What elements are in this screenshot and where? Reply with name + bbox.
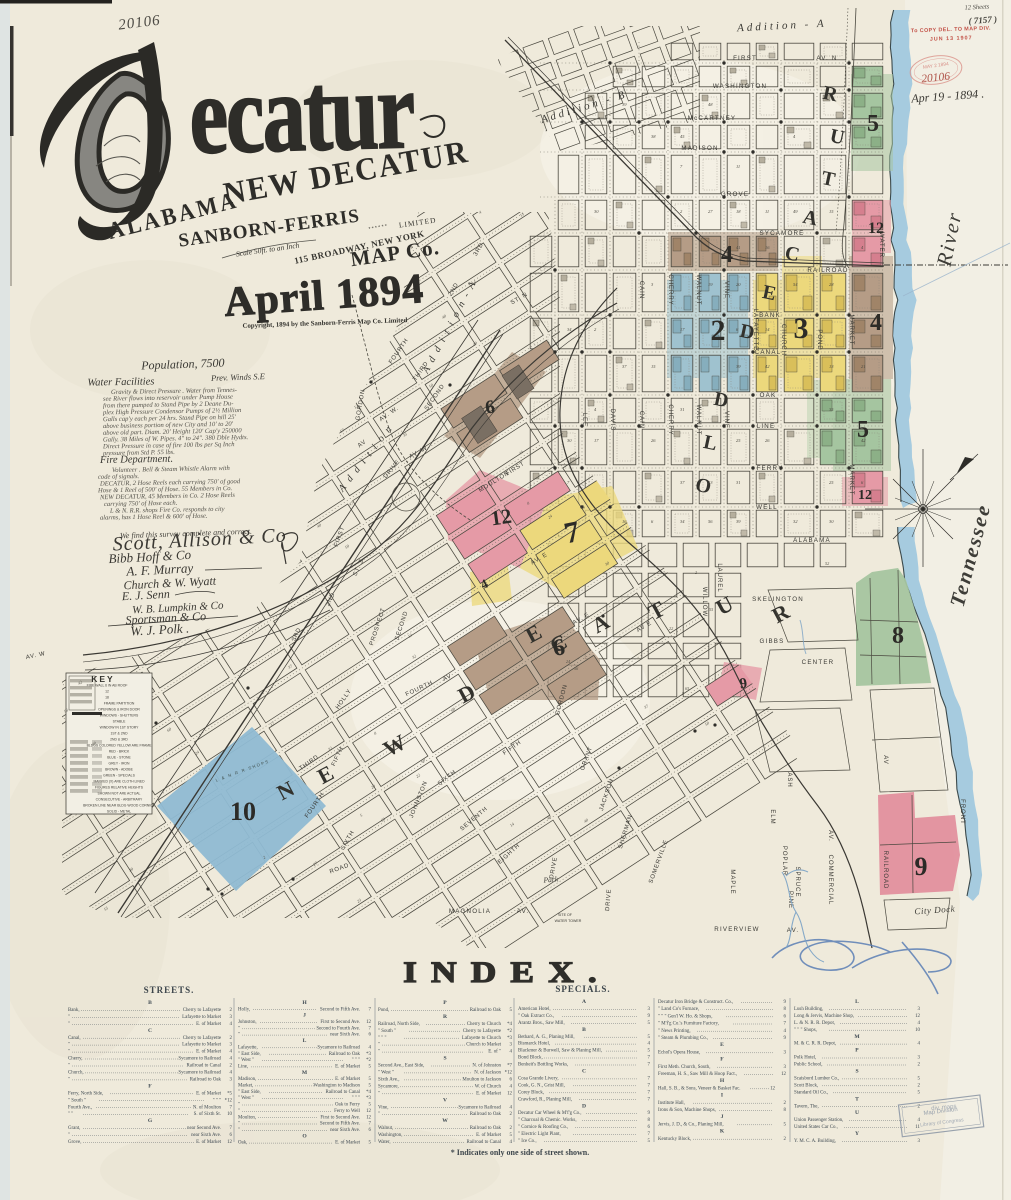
svg-text:Moulton,: Moulton, bbox=[238, 1115, 256, 1120]
svg-text:E. of Market: E. of Market bbox=[196, 1091, 221, 1096]
svg-text:E. J. Senn: E. J. Senn bbox=[120, 587, 170, 604]
svg-text:27: 27 bbox=[708, 209, 713, 214]
svg-text:P: P bbox=[855, 1048, 859, 1054]
svg-text:Line,: Line, bbox=[238, 1064, 248, 1069]
svg-text:" " " Shops,: " " " Shops, bbox=[794, 1028, 817, 1033]
svg-text:": " bbox=[238, 1128, 240, 1133]
svg-text:16: 16 bbox=[622, 519, 627, 524]
svg-text:STREETS.: STREETS. bbox=[144, 985, 195, 995]
svg-text:CENTER: CENTER bbox=[802, 659, 835, 666]
svg-text:United States Car Co.,: United States Car Co., bbox=[794, 1125, 838, 1130]
svg-text:" South ": " South " bbox=[68, 1098, 86, 1103]
svg-text:" Electric Light Plant,: " Electric Light Plant, bbox=[518, 1132, 561, 1137]
svg-text:S: S bbox=[855, 1069, 858, 1075]
svg-text:": " bbox=[68, 1015, 70, 1020]
svg-text:" Land Co's Furnace,: " Land Co's Furnace, bbox=[658, 1007, 699, 1012]
svg-text:First to Second Ave.: First to Second Ave. bbox=[320, 1115, 360, 1120]
svg-text:Railroad to Canal: Railroad to Canal bbox=[326, 1090, 361, 1095]
svg-text:SKELINGTON: SKELINGTON bbox=[752, 596, 804, 603]
svg-text:Corey Block,: Corey Block, bbox=[518, 1090, 544, 1095]
svg-text:31: 31 bbox=[680, 407, 685, 412]
svg-text:Sycamore to Railroad: Sycamore to Railroad bbox=[317, 1045, 360, 1050]
svg-text:52: 52 bbox=[825, 561, 829, 566]
svg-text:49: 49 bbox=[793, 209, 798, 214]
svg-text:": " bbox=[238, 1109, 240, 1114]
svg-text:37: 37 bbox=[680, 480, 685, 485]
svg-text:F: F bbox=[148, 1083, 152, 1089]
svg-text:10: 10 bbox=[915, 1028, 920, 1033]
svg-text:GREY - IRON: GREY - IRON bbox=[108, 762, 130, 766]
svg-text:Railroad to Canal: Railroad to Canal bbox=[467, 1140, 502, 1145]
svg-text:C: C bbox=[148, 1028, 152, 1034]
svg-text:": " bbox=[68, 1050, 70, 1055]
svg-text:39: 39 bbox=[736, 364, 741, 369]
svg-text:*2: *2 bbox=[507, 1029, 512, 1034]
svg-text:L: L bbox=[303, 1038, 307, 1044]
svg-text:21: 21 bbox=[861, 364, 866, 369]
svg-text:WASHINGTON: WASHINGTON bbox=[713, 83, 767, 90]
svg-text:" East Side,: " East Side, bbox=[238, 1090, 261, 1095]
svg-text:Scaisbord Lumber Co.,: Scaisbord Lumber Co., bbox=[794, 1076, 839, 1081]
svg-text:SPECIALS.: SPECIALS. bbox=[555, 984, 610, 994]
svg-text:B: B bbox=[582, 1027, 586, 1033]
svg-text:39: 39 bbox=[736, 519, 741, 524]
svg-text:18: 18 bbox=[736, 209, 741, 214]
svg-text:AV.: AV. bbox=[787, 927, 800, 934]
svg-text:34: 34 bbox=[567, 327, 572, 332]
svg-text:*3: *3 bbox=[366, 1052, 371, 1057]
svg-text:B: B bbox=[148, 1000, 152, 1006]
svg-text:MARKET: MARKET bbox=[848, 314, 854, 345]
svg-text:" " ": " " " bbox=[352, 1096, 360, 1101]
svg-text:22: 22 bbox=[669, 626, 673, 631]
svg-text:" Cornice & Roofing Co.,: " Cornice & Roofing Co., bbox=[518, 1125, 568, 1130]
svg-text:near Sixth Ave.: near Sixth Ave. bbox=[330, 1128, 360, 1133]
svg-text:First Meth. Church, South,: First Meth. Church, South, bbox=[658, 1065, 710, 1070]
svg-text:Railroad, North Side,: Railroad, North Side, bbox=[378, 1022, 420, 1027]
svg-text:65: 65 bbox=[685, 686, 689, 691]
svg-text:" ": " " bbox=[68, 1112, 73, 1117]
svg-text:": " bbox=[68, 1022, 70, 1027]
svg-text:Lafayette to Market: Lafayette to Market bbox=[182, 1043, 221, 1048]
svg-text:W: W bbox=[442, 1118, 448, 1124]
svg-text:17: 17 bbox=[680, 327, 685, 332]
svg-text:E. of Market: E. of Market bbox=[196, 1022, 221, 1027]
svg-text:*7: *7 bbox=[507, 1064, 512, 1069]
svg-text:Arantz Bros., Saw Mill,: Arantz Bros., Saw Mill, bbox=[518, 1021, 565, 1026]
svg-text:MADISON: MADISON bbox=[681, 145, 718, 152]
svg-text:10: 10 bbox=[230, 797, 256, 826]
svg-text:STABLE: STABLE bbox=[113, 720, 126, 724]
svg-text:" West ": " West " bbox=[378, 1071, 394, 1076]
svg-text:Prev. Winds S.E: Prev. Winds S.E bbox=[210, 371, 266, 383]
svg-text:WELL: WELL bbox=[756, 504, 778, 511]
svg-text:" West ": " West " bbox=[238, 1058, 254, 1063]
svg-text:12 Sheets: 12 Sheets bbox=[964, 3, 990, 11]
svg-text:AV: AV bbox=[882, 755, 888, 765]
svg-text:4: 4 bbox=[721, 242, 733, 268]
svg-text:Bond Block,: Bond Block, bbox=[518, 1056, 543, 1061]
svg-text:E. of Market: E. of Market bbox=[476, 1091, 501, 1096]
svg-text:": " bbox=[238, 1026, 240, 1031]
svg-text:12: 12 bbox=[489, 504, 513, 531]
svg-text:" Steam & Plumbing Co.,: " Steam & Plumbing Co., bbox=[658, 1036, 708, 1041]
svg-text:GREEN - SPECIALS: GREEN - SPECIALS bbox=[103, 774, 135, 778]
svg-text:Railroad to Oak: Railroad to Oak bbox=[190, 1077, 222, 1082]
svg-text:": " bbox=[238, 1122, 240, 1127]
svg-text:11: 11 bbox=[765, 209, 769, 214]
svg-text:Moulton to Jackson: Moulton to Jackson bbox=[462, 1077, 501, 1082]
svg-text:U: U bbox=[855, 1110, 859, 1116]
svg-text:VINE: VINE bbox=[723, 281, 729, 299]
svg-text:CONSECUTIVE - ARBITRARY: CONSECUTIVE - ARBITRARY bbox=[96, 798, 143, 802]
svg-text:Bank,: Bank, bbox=[68, 1008, 80, 1013]
svg-text:56: 56 bbox=[708, 519, 713, 524]
svg-text:12: 12 bbox=[507, 1091, 512, 1096]
svg-text:Ferry to Well: Ferry to Well bbox=[334, 1109, 361, 1114]
svg-text:9: 9 bbox=[915, 852, 928, 881]
svg-text:Bismarck Hotel,: Bismarck Hotel, bbox=[518, 1042, 550, 1047]
svg-text:F: F bbox=[720, 1057, 724, 1063]
svg-text:2ND & 3RD: 2ND & 3RD bbox=[110, 738, 128, 742]
svg-text:LAFAYETTE: LAFAYETTE bbox=[752, 309, 758, 352]
svg-text:WALNUT: WALNUT bbox=[695, 404, 701, 435]
svg-text:LAUREL: LAUREL bbox=[716, 563, 722, 592]
svg-text:Second to Fifth Ave.: Second to Fifth Ave. bbox=[320, 1122, 360, 1127]
svg-text:DAVIS: DAVIS bbox=[609, 409, 615, 432]
svg-text:": " bbox=[378, 1112, 380, 1117]
svg-text:30: 30 bbox=[567, 438, 572, 443]
svg-text:M. & C. R. R. Depot,: M. & C. R. R. Depot, bbox=[794, 1042, 836, 1047]
svg-text:48: 48 bbox=[708, 102, 713, 107]
svg-text:AV.: AV. bbox=[827, 830, 833, 842]
svg-text:Cherry to Church: Cherry to Church bbox=[467, 1022, 502, 1027]
svg-text:": " bbox=[68, 1043, 70, 1048]
svg-text:CHURCH: CHURCH bbox=[780, 324, 786, 356]
svg-text:": " bbox=[238, 1103, 240, 1108]
svg-text:*5: *5 bbox=[227, 1091, 232, 1096]
svg-text:11: 11 bbox=[736, 164, 740, 169]
svg-text:Cherry,: Cherry, bbox=[68, 1057, 83, 1062]
svg-text:25: 25 bbox=[829, 480, 834, 485]
svg-text:12: 12 bbox=[366, 1109, 371, 1114]
svg-text:P: P bbox=[443, 1000, 447, 1006]
svg-text:*3: *3 bbox=[366, 1096, 371, 1101]
svg-text:Church to Market: Church to Market bbox=[466, 1043, 501, 1048]
svg-text:E. of ": E. of " bbox=[488, 1050, 501, 1055]
svg-text:WALNUT: WALNUT bbox=[695, 274, 701, 305]
svg-text:Cherry to Lafayette: Cherry to Lafayette bbox=[183, 1008, 221, 1013]
svg-text:13: 13 bbox=[708, 480, 713, 485]
svg-text:POND: POND bbox=[816, 329, 822, 350]
svg-text:*4: *4 bbox=[507, 1022, 512, 1027]
svg-text:Railroad to Canal: Railroad to Canal bbox=[187, 1064, 222, 1069]
svg-text:near Sixth Ave.: near Sixth Ave. bbox=[330, 1033, 360, 1038]
svg-text:Population, 7500: Population, 7500 bbox=[140, 356, 225, 373]
svg-text:H: H bbox=[720, 1078, 725, 1084]
svg-text:3: 3 bbox=[794, 312, 809, 345]
svg-text:8: 8 bbox=[892, 623, 904, 649]
svg-text:FRONT: FRONT bbox=[959, 799, 965, 825]
svg-text:": " bbox=[238, 1033, 240, 1038]
svg-text:Sixth Ave.,: Sixth Ave., bbox=[378, 1077, 400, 1082]
svg-text:Railroad to Oak: Railroad to Oak bbox=[329, 1052, 361, 1057]
svg-text:Ferry, North Side,: Ferry, North Side, bbox=[68, 1091, 103, 1096]
svg-text:Walnut,: Walnut, bbox=[378, 1126, 393, 1131]
svg-text:35: 35 bbox=[829, 407, 834, 412]
svg-text:Park: Park bbox=[542, 874, 559, 884]
svg-text:Lafayette to Church: Lafayette to Church bbox=[462, 1036, 502, 1041]
svg-text:O: O bbox=[302, 1133, 307, 1139]
svg-text:" News Printing,: " News Printing, bbox=[658, 1029, 691, 1034]
svg-text:OAK: OAK bbox=[760, 392, 777, 399]
svg-text:BLUE - STONE: BLUE - STONE bbox=[107, 756, 131, 760]
svg-text:SPRUCE: SPRUCE bbox=[794, 866, 800, 897]
svg-text:FRAME PARTITION: FRAME PARTITION bbox=[104, 702, 135, 706]
svg-text:Second Ave., East Side,: Second Ave., East Side, bbox=[378, 1064, 424, 1069]
svg-text:Grant,: Grant, bbox=[68, 1126, 80, 1131]
svg-text:37: 37 bbox=[622, 364, 627, 369]
svg-text:L: L bbox=[855, 999, 859, 1005]
svg-text:Polk Hotel,: Polk Hotel, bbox=[794, 1056, 816, 1061]
svg-text:PINE: PINE bbox=[787, 891, 793, 909]
svg-text:Oak,: Oak, bbox=[238, 1141, 247, 1146]
svg-text:45: 45 bbox=[680, 134, 685, 139]
svg-text:34: 34 bbox=[680, 519, 685, 524]
svg-text:12: 12 bbox=[366, 1115, 371, 1120]
svg-text:Pond,: Pond, bbox=[378, 1008, 389, 1013]
svg-text:E. of Market: E. of Market bbox=[335, 1077, 360, 1082]
svg-text:16: 16 bbox=[765, 245, 770, 250]
svg-text:WATER: WATER bbox=[878, 232, 884, 258]
svg-text:30: 30 bbox=[829, 519, 834, 524]
svg-text:" M'f'g Co.'s Furniture Facto: " M'f'g Co.'s Furniture Factory, bbox=[658, 1022, 719, 1027]
svg-text:" South ": " South " bbox=[378, 1029, 396, 1034]
svg-text:Jervis, J. D., & Co., Planing: Jervis, J. D., & Co., Planing Mill, bbox=[658, 1122, 724, 1127]
svg-text:AV.: AV. bbox=[517, 908, 530, 915]
svg-text:RED - BRICK: RED - BRICK bbox=[109, 750, 130, 754]
svg-text:41: 41 bbox=[736, 245, 741, 250]
svg-text:32: 32 bbox=[793, 519, 798, 524]
svg-text:31: 31 bbox=[736, 480, 741, 485]
svg-text:N. of Johnston: N. of Johnston bbox=[472, 1064, 501, 1069]
svg-text:Sycamore to Railroad: Sycamore to Railroad bbox=[458, 1105, 501, 1110]
svg-text:RAILROAD: RAILROAD bbox=[807, 267, 848, 274]
svg-text:" East Side,: " East Side, bbox=[238, 1052, 261, 1057]
svg-text:Canal,: Canal, bbox=[68, 1036, 81, 1041]
svg-text:First to Second Ave.: First to Second Ave. bbox=[320, 1020, 360, 1025]
svg-text:Y: Y bbox=[855, 1131, 859, 1137]
svg-text:Decatur Iron Bridge & Construc: Decatur Iron Bridge & Construct. Co., bbox=[658, 1000, 733, 1005]
svg-text:American Hotel,: American Hotel, bbox=[518, 1007, 551, 1012]
svg-text:": " bbox=[378, 1043, 380, 1048]
svg-text:WINDOW IN 1ST STORY: WINDOW IN 1ST STORY bbox=[100, 726, 140, 730]
svg-text:E. of Market: E. of Market bbox=[335, 1141, 360, 1146]
svg-text:AV. N: AV. N bbox=[816, 55, 837, 62]
svg-text:*4: *4 bbox=[366, 1090, 371, 1095]
svg-text:Water,: Water, bbox=[378, 1140, 391, 1145]
svg-text:Sycamore to Railroad: Sycamore to Railroad bbox=[178, 1071, 221, 1076]
svg-text:Holly,: Holly, bbox=[238, 1007, 250, 1012]
svg-text:Lafayette to Market: Lafayette to Market bbox=[182, 1015, 221, 1020]
svg-text:N. of Moulton: N. of Moulton bbox=[193, 1105, 222, 1110]
svg-text:Bethard, A. G., Planing Mill,: Bethard, A. G., Planing Mill, bbox=[518, 1035, 575, 1040]
svg-text:" " " Gen'l W. Ho. & Shops,: " " " Gen'l W. Ho. & Shops, bbox=[658, 1014, 712, 1019]
svg-text:1ST & 2ND: 1ST & 2ND bbox=[110, 732, 128, 736]
svg-text:Sycamore to Railroad: Sycamore to Railroad bbox=[178, 1057, 221, 1062]
svg-text:Freeman, H. S., Saw Mill & Hoo: Freeman, H. S., Saw Mill & Hoop Fact., bbox=[658, 1072, 737, 1077]
svg-text:42: 42 bbox=[861, 438, 866, 443]
svg-text:Irons & Son, Machine Shops,: Irons & Son, Machine Shops, bbox=[658, 1108, 716, 1113]
svg-text:Church,: Church, bbox=[68, 1071, 84, 1076]
svg-text:12: 12 bbox=[366, 1020, 371, 1025]
svg-text:Benheit's Bottling Works,: Benheit's Bottling Works, bbox=[518, 1063, 568, 1068]
svg-text:( 7157 ): ( 7157 ) bbox=[968, 14, 997, 26]
svg-text:42: 42 bbox=[765, 364, 770, 369]
svg-text:GIBBS: GIBBS bbox=[760, 638, 785, 645]
svg-text:Cherry to Lafayette: Cherry to Lafayette bbox=[463, 1029, 501, 1034]
svg-text:CHERRY: CHERRY bbox=[667, 274, 673, 305]
svg-text:A: A bbox=[582, 999, 586, 1005]
svg-text:ASH: ASH bbox=[786, 772, 792, 787]
svg-text:L. & N. R. R. Depot,: L. & N. R. R. Depot, bbox=[794, 1021, 835, 1026]
svg-text:": " bbox=[68, 1077, 70, 1082]
svg-text:*12: *12 bbox=[505, 1071, 513, 1076]
svg-text:Fire Department.: Fire Department. bbox=[99, 454, 173, 466]
svg-text:" Oak Extract Co.,: " Oak Extract Co., bbox=[518, 1014, 554, 1019]
svg-text:14: 14 bbox=[765, 327, 770, 332]
svg-text:Second to Fifth Ave.: Second to Fifth Ave. bbox=[320, 1007, 360, 1012]
svg-text:Railroad to Oak: Railroad to Oak bbox=[470, 1008, 502, 1013]
svg-text:Long & Jervis, Machine Shop,: Long & Jervis, Machine Shop, bbox=[794, 1014, 854, 1019]
svg-text:" West ": " West " bbox=[238, 1096, 254, 1101]
svg-text:CAIN: CAIN bbox=[638, 281, 644, 299]
svg-text:15: 15 bbox=[651, 364, 656, 369]
svg-text:Vine,: Vine, bbox=[378, 1105, 388, 1110]
svg-text:ELM: ELM bbox=[769, 809, 775, 824]
svg-text:FIRE WALL 6 IN AB ROOF: FIRE WALL 6 IN AB ROOF bbox=[87, 684, 128, 688]
svg-text:E. of Market: E. of Market bbox=[476, 1133, 501, 1138]
svg-text:POPLAR: POPLAR bbox=[781, 846, 787, 876]
svg-text:I: I bbox=[721, 1093, 723, 1099]
svg-text:30: 30 bbox=[594, 209, 599, 214]
svg-text:15: 15 bbox=[829, 209, 834, 214]
svg-text:SHOWN NOT ARE ACTUAL: SHOWN NOT ARE ACTUAL bbox=[98, 792, 141, 796]
svg-text:Sycamore,: Sycamore, bbox=[378, 1084, 399, 1089]
svg-text:": " bbox=[378, 1050, 380, 1055]
svg-text:12: 12 bbox=[227, 1140, 232, 1145]
svg-text:Oak to Ferry: Oak to Ferry bbox=[335, 1103, 361, 1108]
svg-text:*3: *3 bbox=[507, 1036, 512, 1041]
svg-text:G: G bbox=[148, 1118, 153, 1124]
svg-text:Scott Block,: Scott Block, bbox=[794, 1083, 818, 1088]
svg-text:WILLOW: WILLOW bbox=[701, 587, 707, 617]
svg-text:20: 20 bbox=[736, 282, 741, 287]
svg-text:CHERRY: CHERRY bbox=[667, 404, 673, 435]
svg-text:H: H bbox=[302, 1000, 307, 1006]
svg-text:near Second Ave.: near Second Ave. bbox=[187, 1126, 221, 1131]
svg-text:BROWN - ADOBE: BROWN - ADOBE bbox=[105, 768, 133, 772]
svg-text:near Sixth Ave.: near Sixth Ave. bbox=[191, 1133, 221, 1138]
svg-text:Kentucky Block,: Kentucky Block, bbox=[658, 1137, 691, 1142]
svg-text:39: 39 bbox=[622, 102, 627, 107]
svg-text:" " ": " " " bbox=[352, 1058, 360, 1063]
svg-text:Second to Fourth Ave.: Second to Fourth Ave. bbox=[316, 1026, 360, 1031]
svg-text:OPENINGS & IRON DOOR: OPENINGS & IRON DOOR bbox=[98, 708, 140, 712]
svg-text:M: M bbox=[854, 1034, 860, 1040]
svg-text:12: 12 bbox=[915, 1014, 920, 1019]
svg-text:E: E bbox=[720, 1042, 724, 1048]
svg-text:2: 2 bbox=[711, 314, 726, 347]
svg-text:Standard Oil Co.,: Standard Oil Co., bbox=[794, 1090, 828, 1095]
svg-text:Cosa Grande Livery,: Cosa Grande Livery, bbox=[518, 1076, 559, 1081]
svg-text:12: 12 bbox=[781, 1072, 786, 1077]
svg-text:Echol's Opera House,: Echol's Opera House, bbox=[658, 1050, 700, 1055]
svg-text:SOLID - METAL: SOLID - METAL bbox=[107, 810, 131, 814]
svg-text:12: 12 bbox=[105, 690, 109, 694]
svg-text:*2: *2 bbox=[366, 1058, 371, 1063]
svg-text:": " bbox=[68, 1133, 70, 1138]
svg-text:Blackmer & Burwell, Saw & Plan: Blackmer & Burwell, Saw & Planing Mill, bbox=[518, 1049, 602, 1054]
svg-text:12: 12 bbox=[858, 488, 872, 503]
svg-text:Lush Building,: Lush Building, bbox=[794, 1007, 823, 1012]
svg-text:26: 26 bbox=[765, 438, 770, 443]
svg-text:" Charcoal & Chemic. Works,: " Charcoal & Chemic. Works, bbox=[518, 1118, 577, 1123]
svg-text:17: 17 bbox=[594, 438, 599, 443]
svg-text:Grove,: Grove, bbox=[68, 1140, 81, 1145]
svg-text:5: 5 bbox=[867, 111, 879, 137]
svg-text:FIGURES RELATIVE HEIGHTS: FIGURES RELATIVE HEIGHTS bbox=[95, 786, 144, 790]
svg-text:J: J bbox=[721, 1114, 724, 1120]
svg-text:38: 38 bbox=[651, 134, 656, 139]
svg-text:18: 18 bbox=[105, 696, 109, 700]
svg-text:RIVERVIEW: RIVERVIEW bbox=[714, 926, 759, 933]
svg-text:W. J. Polk .: W. J. Polk . bbox=[130, 620, 189, 638]
svg-text:BANK: BANK bbox=[759, 312, 781, 319]
svg-text:SITE OF: SITE OF bbox=[558, 913, 573, 917]
svg-text:12: 12 bbox=[770, 1086, 775, 1091]
svg-text:MAPLE: MAPLE bbox=[729, 869, 735, 894]
svg-text:" " ": " " " bbox=[213, 1098, 221, 1103]
svg-text:Crawford, R., Planing Mill,: Crawford, R., Planing Mill, bbox=[518, 1097, 572, 1102]
svg-text:Hall, S. B., & Sons, Veneer &: Hall, S. B., & Sons, Veneer & Basket Fac… bbox=[658, 1086, 741, 1091]
svg-text:C: C bbox=[582, 1069, 586, 1075]
svg-text:LINE: LINE bbox=[757, 423, 776, 430]
svg-text:": " bbox=[68, 1064, 70, 1069]
svg-text:WINDOWS - SHUTTERS: WINDOWS - SHUTTERS bbox=[100, 714, 139, 718]
svg-text:Tavern, The,: Tavern, The, bbox=[794, 1104, 819, 1109]
svg-text:V: V bbox=[443, 1097, 447, 1103]
svg-text:55: 55 bbox=[709, 607, 713, 612]
svg-text:S. of Sixth St.: S. of Sixth St. bbox=[194, 1112, 221, 1117]
svg-text:Madison,: Madison, bbox=[238, 1077, 256, 1082]
svg-text:McCARTNEY: McCARTNEY bbox=[688, 115, 737, 122]
svg-text:Union Passenger Station,: Union Passenger Station, bbox=[794, 1118, 843, 1123]
svg-text:FIRST: FIRST bbox=[733, 55, 757, 62]
svg-text:K: K bbox=[720, 1129, 725, 1135]
svg-text:4: 4 bbox=[870, 310, 882, 336]
svg-text:Railroad to Oak: Railroad to Oak bbox=[470, 1112, 502, 1117]
svg-text:ALABAMA: ALABAMA bbox=[793, 537, 831, 544]
svg-text:Market,: Market, bbox=[238, 1084, 253, 1089]
svg-text:E. of Market: E. of Market bbox=[335, 1064, 360, 1069]
svg-text:M: M bbox=[302, 1070, 308, 1076]
svg-text:* Indicates only one side of s: * Indicates only one side of street show… bbox=[451, 1148, 590, 1157]
svg-text:Railroad to Oak: Railroad to Oak bbox=[470, 1126, 502, 1131]
svg-text:13: 13 bbox=[829, 364, 834, 369]
svg-text:28: 28 bbox=[829, 282, 834, 287]
svg-text:RAILROAD: RAILROAD bbox=[882, 851, 888, 890]
